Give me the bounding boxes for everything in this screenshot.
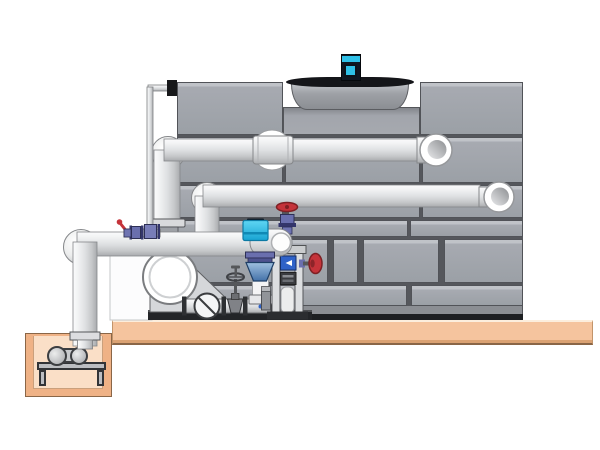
stand-post xyxy=(272,250,280,314)
flange xyxy=(222,297,227,316)
handwheel-hub xyxy=(310,260,314,268)
diffuser-flange xyxy=(246,252,275,258)
sump-suction-pipe xyxy=(73,242,97,346)
piping-overlay xyxy=(0,0,600,450)
cooling-tower-diagram xyxy=(0,0,600,450)
flange xyxy=(243,297,248,316)
flange xyxy=(182,297,187,316)
ball-valve-body xyxy=(124,229,131,237)
handwheel-hub xyxy=(285,205,289,209)
valve-flange xyxy=(279,223,297,227)
gauge-line xyxy=(283,275,294,278)
side-block-cap xyxy=(262,287,271,292)
pipe-bore xyxy=(428,140,447,159)
suction-diffuser-cone xyxy=(246,263,274,282)
control-valve-actuator xyxy=(243,221,268,241)
pipe-bore xyxy=(491,188,509,206)
pump-suction-ring xyxy=(150,257,191,298)
sump-pipe-stub xyxy=(78,340,93,349)
gate-valve-bonnet xyxy=(232,294,240,300)
end-cap-ring xyxy=(272,233,291,252)
float-valve xyxy=(145,225,157,239)
stand-base xyxy=(267,312,308,320)
flange-bar xyxy=(141,226,144,240)
header-run xyxy=(77,232,270,256)
stem-tee xyxy=(231,266,240,269)
side-block xyxy=(262,291,271,310)
sump-pipe-flange xyxy=(70,332,100,340)
hot-water-supply-pipe xyxy=(149,130,452,234)
lever-knob xyxy=(117,219,123,225)
flange-bar xyxy=(158,224,161,239)
makeup-flange xyxy=(167,80,177,96)
gauge-line xyxy=(283,280,294,283)
actuator-band xyxy=(243,232,268,235)
solenoid-valve xyxy=(132,227,141,239)
pipe-run xyxy=(203,185,480,207)
pipe-coupling xyxy=(253,136,293,164)
diffuser-flange xyxy=(248,258,272,263)
drain-elbow xyxy=(281,287,294,313)
makeup-pipe-riser xyxy=(147,87,153,228)
gauge-panel xyxy=(281,273,297,285)
